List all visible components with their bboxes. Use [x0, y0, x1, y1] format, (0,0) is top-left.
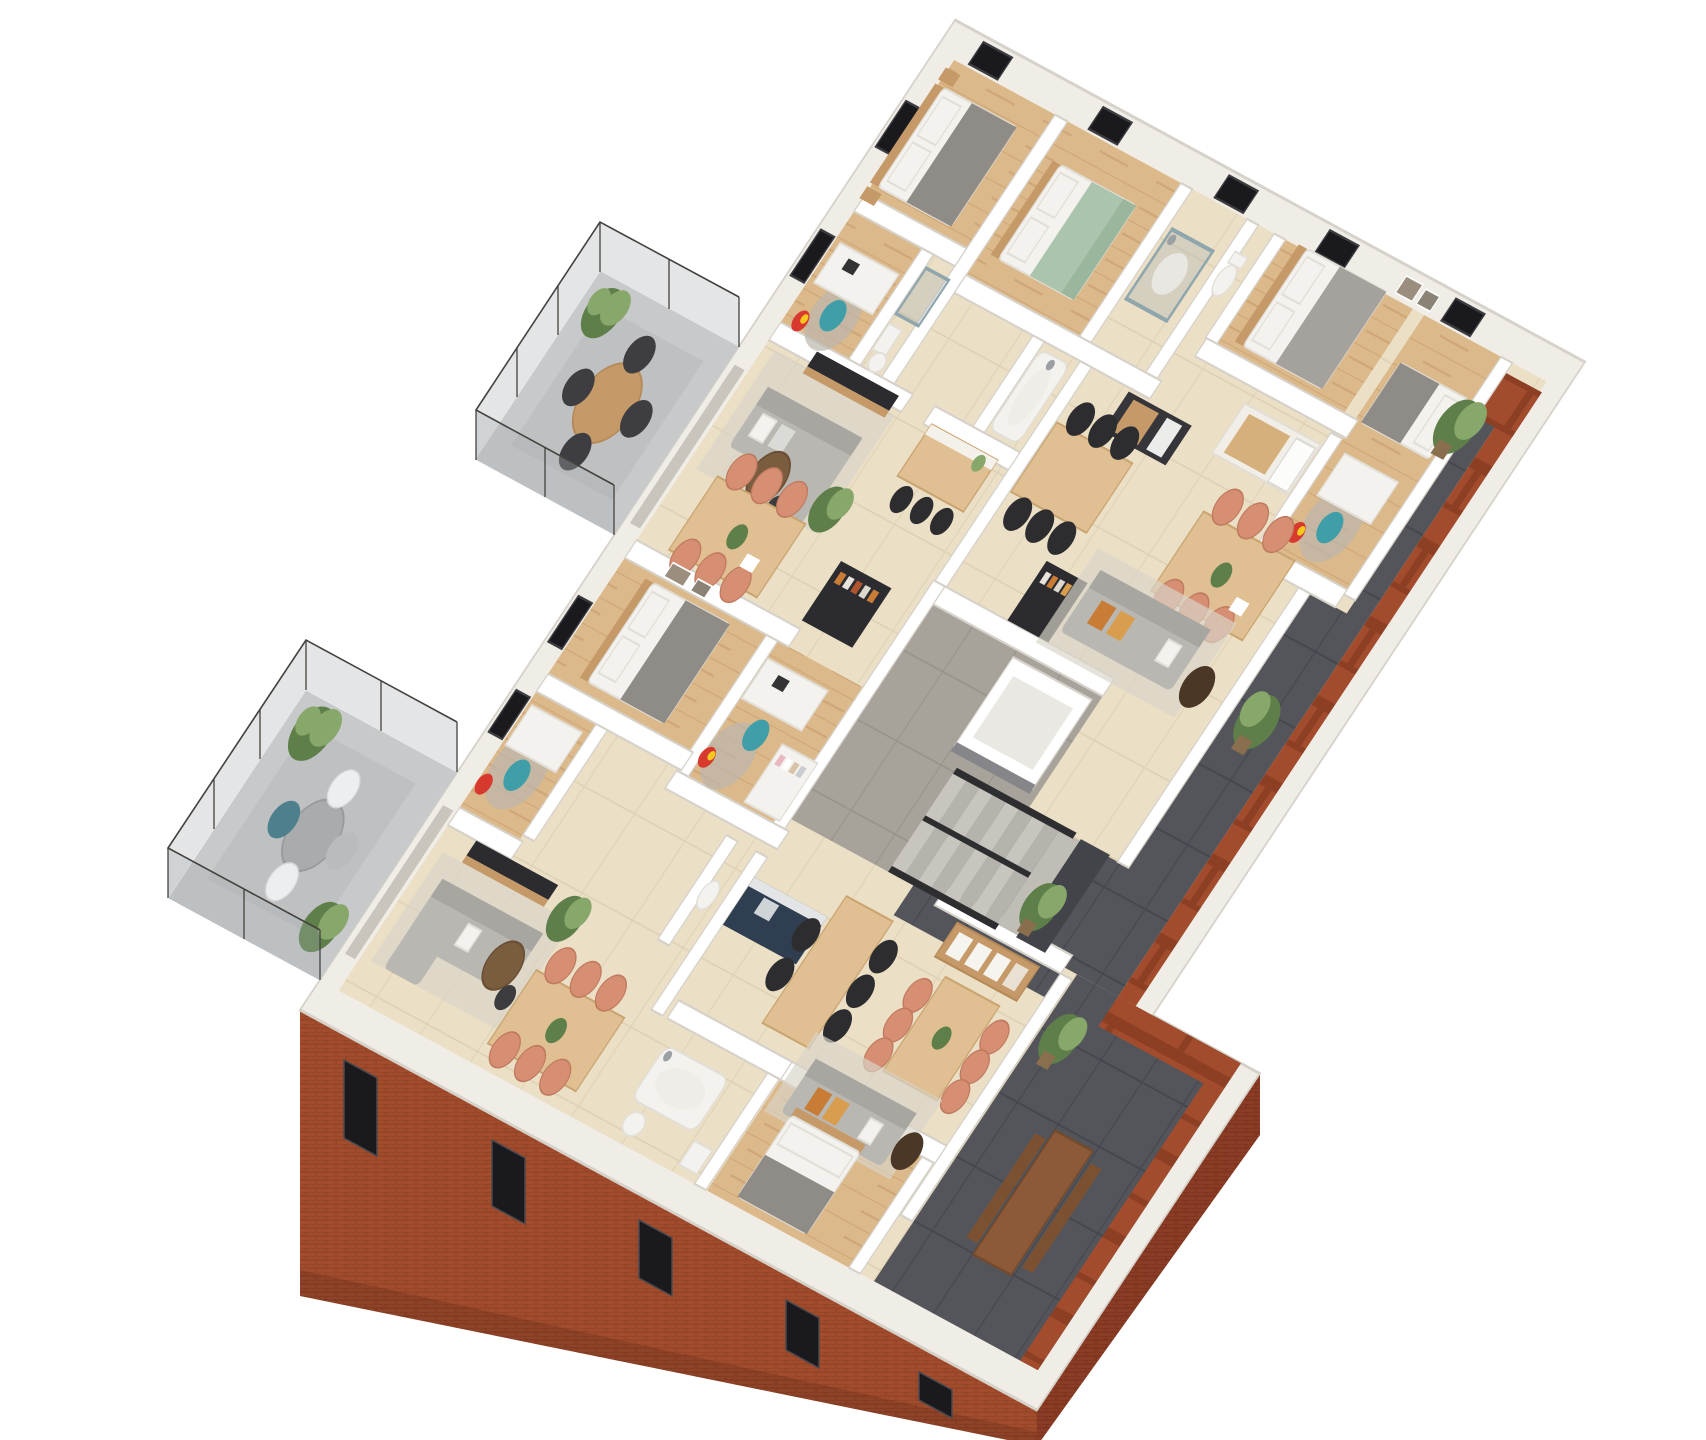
- floor-plan-render: 3D isometric cutaway floor plan renderin…: [0, 0, 1706, 1440]
- floor-plan-page: 3D isometric cutaway floor plan renderin…: [0, 0, 1706, 1440]
